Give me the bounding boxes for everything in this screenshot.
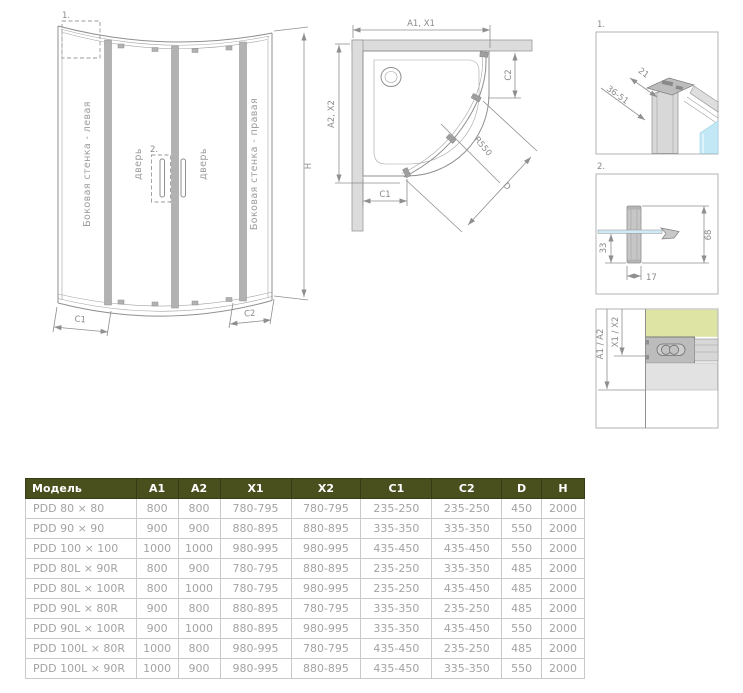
- detail-2-box-marker: 2.: [597, 162, 605, 172]
- value-cell: 485: [502, 639, 542, 659]
- value-cell: 435-450: [432, 579, 502, 599]
- panel-label-door-left: дверь: [133, 148, 144, 180]
- value-cell: 800: [136, 579, 178, 599]
- value-cell: 1000: [136, 659, 178, 679]
- value-cell: 780-795: [220, 499, 291, 519]
- value-cell: 550: [502, 659, 542, 679]
- table-row: PDD 80L × 90R800900780-795880-895235-250…: [26, 559, 585, 579]
- dim-label-a1a2: A1 / A2: [596, 329, 606, 360]
- value-cell: 435-450: [432, 619, 502, 639]
- detail-2-drawing: 2. 68 33 17: [596, 162, 718, 294]
- dim-label-33: 33: [599, 243, 609, 254]
- panel-label-door-right: дверь: [198, 148, 209, 180]
- value-cell: 2000: [541, 539, 584, 559]
- header-cell: C2: [432, 479, 502, 499]
- header-cell: X2: [291, 479, 361, 499]
- value-cell: 780-795: [291, 639, 361, 659]
- value-cell: 1000: [136, 639, 178, 659]
- value-cell: 980-995: [220, 659, 291, 679]
- dim-label-h: H: [304, 163, 314, 169]
- table-row: PDD 100L × 90R1000900980-995880-895435-4…: [26, 659, 585, 679]
- table-row: PDD 100 × 10010001000980-995980-995435-4…: [26, 539, 585, 559]
- value-cell: 880-895: [291, 659, 361, 679]
- table-row: PDD 90L × 100R9001000880-895980-995335-3…: [26, 619, 585, 639]
- value-cell: 450: [502, 499, 542, 519]
- value-cell: 880-895: [291, 519, 361, 539]
- value-cell: 800: [178, 499, 220, 519]
- header-cell: H: [541, 479, 584, 499]
- value-cell: 1000: [178, 579, 220, 599]
- value-cell: 980-995: [220, 639, 291, 659]
- spec-table-body: PDD 80 × 80800800780-795780-795235-25023…: [26, 499, 585, 679]
- value-cell: 235-250: [361, 559, 432, 579]
- table-header-row: МодельA1A2X1X2C1C2DH: [26, 479, 585, 499]
- value-cell: 980-995: [291, 619, 361, 639]
- value-cell: 780-795: [291, 499, 361, 519]
- value-cell: 550: [502, 519, 542, 539]
- value-cell: 2000: [541, 499, 584, 519]
- value-cell: 980-995: [291, 579, 361, 599]
- value-cell: 2000: [541, 619, 584, 639]
- profile-bar: [172, 46, 179, 308]
- value-cell: 2000: [541, 659, 584, 679]
- detail-1-box-marker: 1.: [597, 20, 605, 30]
- value-cell: 900: [178, 659, 220, 679]
- value-cell: 2000: [541, 599, 584, 619]
- value-cell: 485: [502, 599, 542, 619]
- shower-tray: [363, 51, 489, 176]
- value-cell: 435-450: [361, 539, 432, 559]
- value-cell: 435-450: [361, 659, 432, 679]
- table-row: PDD 90L × 80R900800880-895780-795335-350…: [26, 599, 585, 619]
- spec-table: МодельA1A2X1X2C1C2DH PDD 80 × 8080080078…: [25, 478, 585, 679]
- value-cell: 780-795: [220, 559, 291, 579]
- model-cell: PDD 100L × 80R: [26, 639, 137, 659]
- dim-label-diagonal: D: [501, 181, 513, 193]
- value-cell: 900: [178, 519, 220, 539]
- value-cell: 800: [136, 499, 178, 519]
- model-cell: PDD 80 × 80: [26, 499, 137, 519]
- value-cell: 900: [136, 619, 178, 639]
- header-cell: X1: [220, 479, 291, 499]
- dim-label-68: 68: [704, 230, 714, 241]
- header-cell: A2: [178, 479, 220, 499]
- detail-3-drawing: A1 / A2 X1 / X2: [596, 309, 718, 428]
- model-cell: PDD 90L × 100R: [26, 619, 137, 639]
- value-cell: 2000: [541, 639, 584, 659]
- value-cell: 780-795: [291, 599, 361, 619]
- wall-top: [352, 40, 532, 51]
- glass-section: [598, 230, 662, 233]
- value-cell: 335-350: [361, 619, 432, 639]
- model-cell: PDD 100L × 90R: [26, 659, 137, 679]
- table-row: PDD 100L × 80R1000800980-995780-795435-4…: [26, 639, 585, 659]
- value-cell: 880-895: [291, 559, 361, 579]
- value-cell: 435-450: [361, 639, 432, 659]
- detail-2-marker: 2.: [150, 145, 158, 155]
- front-view-drawing: 1. 2. Боковая стенка - левая дверь дверь…: [53, 11, 314, 336]
- dim-label-radius: R550: [472, 135, 494, 158]
- value-cell: 800: [178, 599, 220, 619]
- model-cell: PDD 80L × 100R: [26, 579, 137, 599]
- table-row: PDD 80 × 80800800780-795780-795235-25023…: [26, 499, 585, 519]
- value-cell: 435-450: [432, 539, 502, 559]
- value-cell: 780-795: [220, 579, 291, 599]
- value-cell: 1000: [136, 539, 178, 559]
- model-cell: PDD 90 × 90: [26, 519, 137, 539]
- value-cell: 2000: [541, 559, 584, 579]
- value-cell: 900: [178, 559, 220, 579]
- dim-label-c2-front: C2: [244, 309, 256, 320]
- product-spec-sheet: 1. 2. Боковая стенка - левая дверь дверь…: [0, 0, 743, 693]
- dim-label-c2-top: C2: [504, 69, 514, 80]
- model-cell: PDD 100 × 100: [26, 539, 137, 559]
- value-cell: 550: [502, 539, 542, 559]
- handle-bar-section: [627, 206, 641, 263]
- technical-drawings: 1. 2. Боковая стенка - левая дверь дверь…: [0, 0, 743, 465]
- value-cell: 335-350: [432, 519, 502, 539]
- value-cell: 900: [136, 519, 178, 539]
- header-cell: Модель: [26, 479, 137, 499]
- value-cell: 335-350: [361, 599, 432, 619]
- value-cell: 335-350: [432, 559, 502, 579]
- dim-label-c1-top: C1: [379, 190, 390, 200]
- door-handle-left: [160, 159, 165, 197]
- value-cell: 880-895: [220, 519, 291, 539]
- profile-bar: [240, 42, 247, 301]
- value-cell: 900: [136, 599, 178, 619]
- value-cell: 2000: [541, 579, 584, 599]
- value-cell: 335-350: [361, 519, 432, 539]
- detail-1-marker: 1.: [62, 11, 70, 21]
- panel-label-left-wall: Боковая стенка - левая: [82, 101, 93, 227]
- value-cell: 235-250: [361, 579, 432, 599]
- door-handle-right: [181, 159, 186, 197]
- profile-bar: [105, 40, 112, 305]
- detail-1-drawing: 1. 21 36-51: [596, 20, 718, 154]
- value-cell: 1000: [178, 539, 220, 559]
- value-cell: 800: [136, 559, 178, 579]
- header-cell: D: [502, 479, 542, 499]
- dim-label-17: 17: [646, 273, 657, 283]
- dim-label-a1x1: A1, X1: [407, 19, 435, 29]
- dim-label-c1-front: C1: [74, 315, 86, 326]
- table-row: PDD 90 × 90900900880-895880-895335-35033…: [26, 519, 585, 539]
- dim-label-x1x2: X1 / X2: [611, 317, 621, 348]
- value-cell: 980-995: [291, 539, 361, 559]
- value-cell: 235-250: [432, 599, 502, 619]
- wall-band: [646, 310, 718, 337]
- value-cell: 485: [502, 579, 542, 599]
- value-cell: 800: [178, 639, 220, 659]
- value-cell: 1000: [178, 619, 220, 639]
- value-cell: 485: [502, 559, 542, 579]
- table-row: PDD 80L × 100R8001000780-795980-995235-2…: [26, 579, 585, 599]
- value-cell: 550: [502, 619, 542, 639]
- dim-label-a2x2: A2, X2: [327, 100, 337, 128]
- header-cell: A1: [136, 479, 178, 499]
- model-cell: PDD 80L × 90R: [26, 559, 137, 579]
- value-cell: 235-250: [361, 499, 432, 519]
- top-view-drawing: A1, X1 A2, X2 C2 C1 R550 D: [327, 19, 537, 232]
- value-cell: 335-350: [432, 659, 502, 679]
- panel-label-right-wall: Боковая стенка - правая: [249, 98, 260, 230]
- value-cell: 880-895: [220, 599, 291, 619]
- value-cell: 2000: [541, 519, 584, 539]
- value-cell: 880-895: [220, 619, 291, 639]
- value-cell: 980-995: [220, 539, 291, 559]
- value-cell: 235-250: [432, 639, 502, 659]
- model-cell: PDD 90L × 80R: [26, 599, 137, 619]
- header-cell: C1: [361, 479, 432, 499]
- detail-1-callout: [62, 21, 100, 58]
- wall-left: [352, 40, 363, 231]
- value-cell: 235-250: [432, 499, 502, 519]
- spec-table-wrap: МодельA1A2X1X2C1C2DH PDD 80 × 8080080078…: [25, 478, 585, 679]
- spec-table-head: МодельA1A2X1X2C1C2DH: [26, 479, 585, 499]
